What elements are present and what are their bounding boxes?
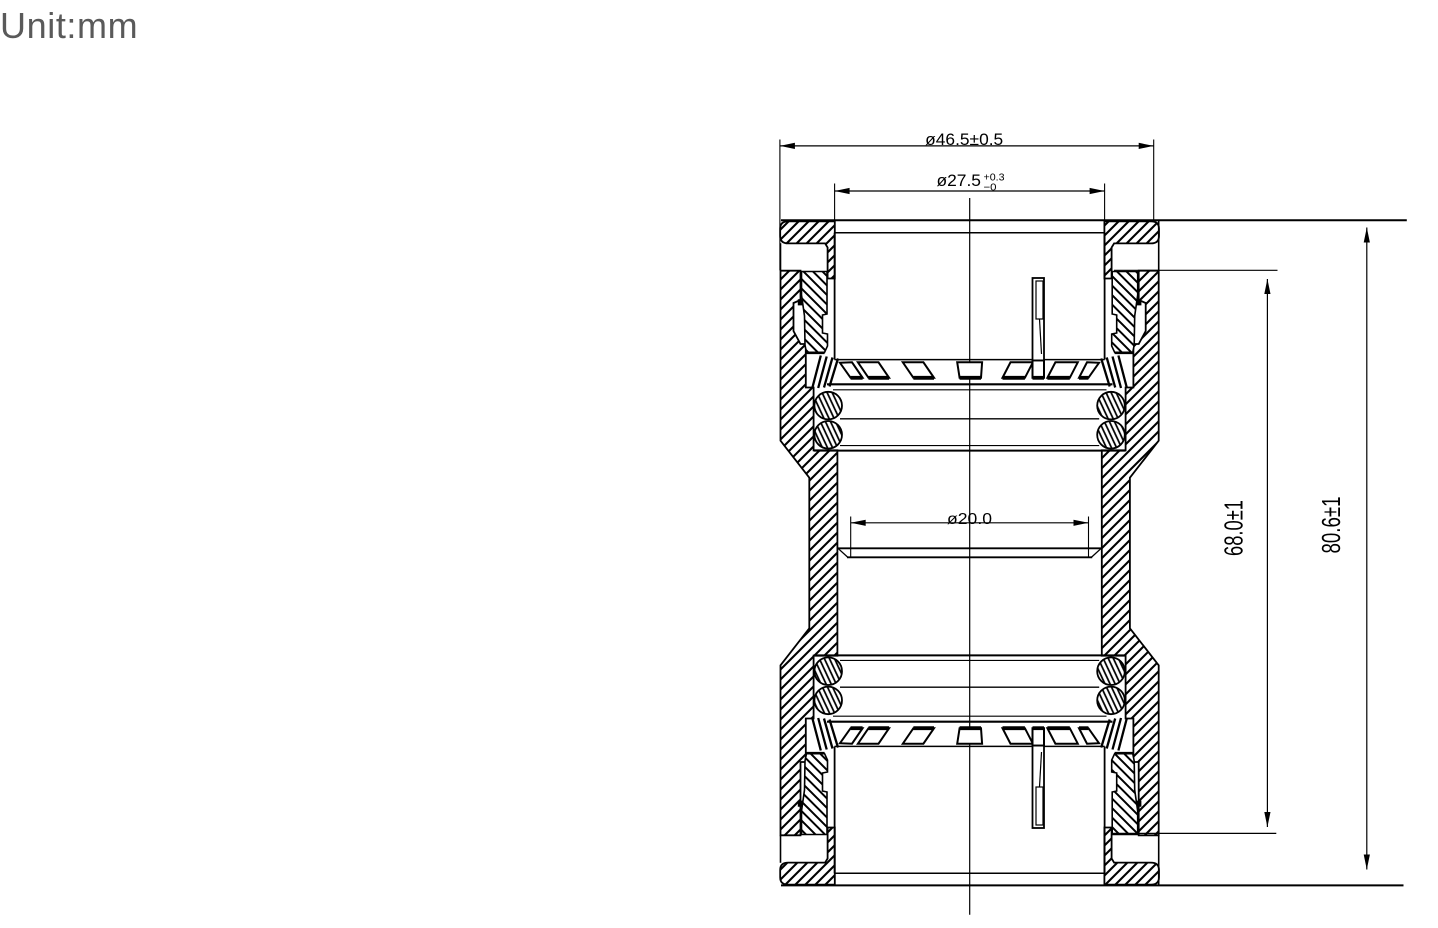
svg-text:Unit:mm: Unit:mm (0, 5, 138, 46)
svg-text:ø27.5: ø27.5 (937, 172, 982, 190)
svg-text:ø20.0: ø20.0 (947, 511, 992, 528)
svg-text:68.0±1: 68.0±1 (1219, 500, 1249, 556)
svg-text:80.6±1: 80.6±1 (1316, 497, 1346, 554)
svg-text:−0: −0 (984, 182, 997, 194)
svg-text:ø46.5±0.5: ø46.5±0.5 (925, 131, 1003, 149)
